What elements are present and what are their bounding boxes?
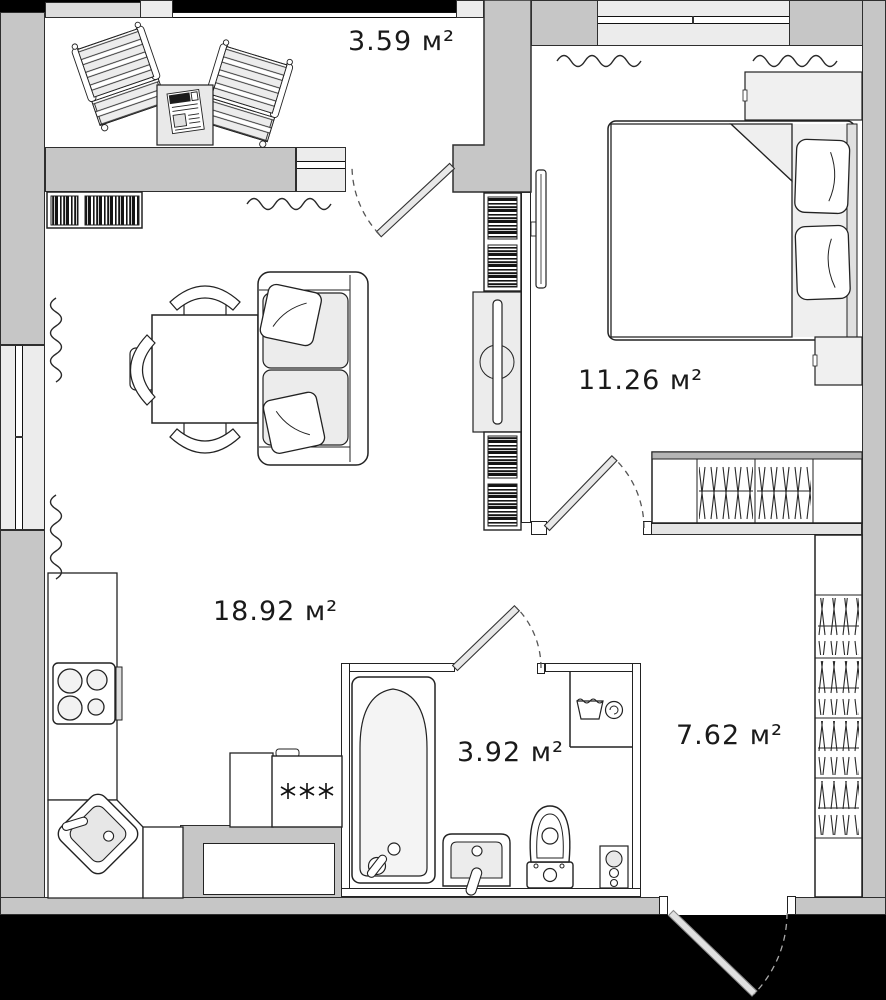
stove-icon (53, 663, 122, 724)
bathroom-sink-icon (443, 834, 510, 896)
hall-wardrobe-icon (815, 535, 862, 897)
door-swing-arc (352, 166, 379, 234)
floor-plan: 3.59 м² 11.26 м² 18.92 м² 3.92 м² 7.62 м… (0, 0, 886, 1000)
bookshelf-icon (47, 192, 142, 228)
dining-table-icon (130, 286, 258, 453)
wall-central-shaft (453, 0, 531, 192)
bathtub-icon (352, 677, 435, 883)
pillow-icon (262, 391, 326, 455)
freezer-icon (272, 749, 342, 827)
lounge-chair-icon (70, 21, 172, 133)
door-swing-arc (754, 913, 787, 994)
sofa-icon (258, 272, 368, 465)
pillow-icon (259, 283, 323, 347)
door-swing-arc (517, 608, 541, 668)
kitchen-cabinet (230, 753, 273, 827)
closet-icon (743, 72, 862, 120)
toilet-icon (527, 806, 573, 888)
pillow-icon (795, 225, 851, 300)
newspaper-icon (167, 90, 204, 134)
bed-icon (608, 121, 857, 340)
washing-machine-icon (570, 672, 632, 747)
tv-stand-icon (473, 292, 521, 432)
mirror-icon (531, 170, 546, 288)
furniture-layer (0, 0, 886, 1000)
bedroom-door (544, 456, 644, 531)
entrance-door (669, 910, 787, 996)
wardrobe-icon (652, 452, 862, 523)
bathroom-door (453, 606, 541, 671)
bookshelf-icon (484, 432, 521, 530)
pillow-icon (794, 139, 850, 214)
bookshelf-icon (484, 193, 521, 291)
door-swing-arc (614, 458, 644, 528)
freezer-stars-icon (281, 783, 333, 799)
closet-icon (813, 337, 862, 385)
intercom-panel-icon (600, 846, 628, 888)
balcony-table-icon (157, 85, 213, 145)
balcony-door (352, 163, 454, 236)
